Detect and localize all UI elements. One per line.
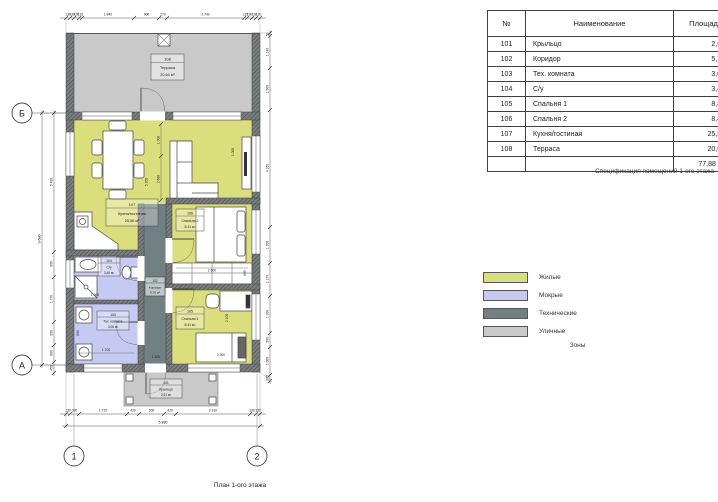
zones-legend: Жилые Мокрые Технические Уличные [483, 271, 577, 343]
header-area: Площадь [674, 11, 718, 37]
svg-text:104: 104 [106, 259, 112, 263]
table-row: 102 Коридор 5,79 [488, 52, 718, 67]
legend-label: Жилые [539, 274, 561, 281]
svg-text:190: 190 [249, 409, 255, 413]
svg-text:С/у: С/у [106, 266, 111, 270]
legend-swatch-outdoor [483, 326, 528, 337]
svg-text:330: 330 [72, 409, 78, 413]
table-row: 101 Крыльцо 2,61 [488, 37, 718, 52]
svg-text:2 600: 2 600 [157, 175, 161, 183]
table-row: 106 Спальня 2 8,41 [488, 112, 718, 127]
legend-item-wet: Мокрые [483, 289, 577, 301]
svg-text:101: 101 [163, 381, 169, 385]
table-caption: Спецификация помещений 1-ого этажа [487, 168, 714, 175]
label-corridor: 102 Коридор 5,79 м² [145, 277, 165, 296]
svg-text:1 000: 1 000 [157, 136, 161, 144]
svg-text:Крыльцо: Крыльцо [159, 388, 173, 392]
svg-text:130: 130 [256, 13, 262, 17]
svg-text:9 680: 9 680 [38, 235, 42, 244]
svg-text:1 000: 1 000 [91, 293, 99, 297]
svg-text:1 170: 1 170 [266, 275, 270, 283]
svg-text:500: 500 [266, 337, 270, 343]
label-bedroom2: 106 Спальня 2 8,41 м² [176, 209, 204, 231]
specification-table: № Наименование Площадь 101 Крыльцо 2,61 … [487, 10, 714, 172]
svg-text:2 740: 2 740 [201, 13, 209, 17]
svg-text:1 400: 1 400 [152, 355, 160, 359]
legend-item-technical: Технические [483, 307, 577, 319]
plan-caption: План 1-ого этажа [214, 482, 267, 489]
axis-label-b: Б [19, 109, 25, 119]
svg-text:3,40 м²: 3,40 м² [104, 271, 114, 275]
header-name: Наименование [526, 11, 674, 37]
table-row: 103 Тех. комната 3,06 [488, 67, 718, 82]
svg-text:1 000: 1 000 [231, 148, 235, 156]
legend-title: Зоны [540, 342, 615, 349]
svg-text:5 300: 5 300 [145, 178, 149, 186]
svg-text:1 140: 1 140 [266, 48, 270, 56]
svg-text:420: 420 [167, 409, 173, 413]
table-row: 108 Терраса 20,64 [488, 142, 718, 157]
svg-text:900: 900 [149, 409, 155, 413]
blueprint-page: 108 Терраса 20,64 м² 107 Кухня/гостиная … [0, 0, 718, 502]
label-terrace: 108 Терраса 20,64 м² [151, 54, 184, 80]
svg-text:8,41 м²: 8,41 м² [184, 225, 196, 229]
svg-text:25,56 м²: 25,56 м² [125, 219, 140, 223]
svg-text:106: 106 [187, 212, 193, 216]
svg-text:270: 270 [160, 13, 166, 17]
table-row: 104 С/у 3,40 [488, 82, 718, 97]
axis-label-1: 1 [71, 452, 76, 462]
svg-text:900: 900 [50, 261, 54, 267]
svg-text:900: 900 [144, 13, 150, 17]
label-bedroom1: 105 Спальня 1 8,41 м² [176, 307, 204, 329]
svg-text:1 840: 1 840 [104, 13, 112, 17]
svg-text:1 700: 1 700 [102, 348, 110, 352]
label-tech: 103 Тех. комната 3,06 м² [97, 311, 129, 330]
table-row: 107 Кухня/гостиная 25,56 [488, 127, 718, 142]
svg-text:6 880: 6 880 [159, 421, 168, 425]
svg-text:1 000: 1 000 [266, 357, 270, 365]
dim-labels-left: 5 490 900 1 770 900 680 450 9 680 [38, 178, 54, 371]
svg-text:680: 680 [50, 350, 54, 356]
axis-label-a: А [19, 361, 25, 371]
axis-label-2: 2 [254, 452, 259, 462]
label-kitchen-living: 107 Кухня/гостиная 25,56 м² [106, 199, 158, 226]
svg-text:Спальня 2: Спальня 2 [182, 219, 199, 223]
svg-text:4 160: 4 160 [266, 164, 270, 172]
legend-swatch-wet [483, 290, 528, 301]
legend-swatch-residential [483, 272, 528, 283]
tv-unit [242, 137, 251, 189]
svg-text:Коридор: Коридор [149, 286, 161, 290]
table-row: 105 Спальня 1 8,41 [488, 97, 718, 112]
svg-text:2 900: 2 900 [208, 269, 216, 273]
svg-text:200: 200 [266, 375, 270, 381]
svg-text:107: 107 [129, 202, 136, 207]
svg-text:130: 130 [255, 409, 261, 413]
svg-text:5 490: 5 490 [50, 178, 54, 186]
legend-item-residential: Жилые [483, 271, 577, 283]
svg-text:2 900: 2 900 [217, 353, 225, 357]
dim-labels-bottom: 130 330 1 710 420 900 420 2 910 190 130 … [65, 409, 261, 425]
svg-text:420: 420 [130, 409, 136, 413]
room-kitchen-living [74, 120, 252, 204]
svg-text:900: 900 [50, 330, 54, 336]
svg-text:2 100: 2 100 [225, 314, 229, 322]
svg-text:3,06 м²: 3,06 м² [108, 325, 118, 329]
label-bathroom: 104 С/у 3,40 м² [98, 257, 120, 276]
dim-labels-top: 130 130 190 115 1 840 900 270 2 740 115 … [65, 13, 261, 17]
legend-item-outdoor: Уличные [483, 325, 577, 337]
svg-text:130: 130 [65, 409, 71, 413]
legend-label: Уличные [539, 328, 565, 335]
floor-plan: 108 Терраса 20,64 м² 107 Кухня/гостиная … [0, 0, 310, 502]
svg-text:103: 103 [110, 313, 116, 317]
svg-text:1 710: 1 710 [99, 409, 107, 413]
svg-text:2 910: 2 910 [209, 409, 217, 413]
svg-text:Тех. комната: Тех. комната [104, 320, 123, 324]
svg-text:Кухня/гостиная: Кухня/гостиная [118, 211, 146, 216]
svg-text:450: 450 [50, 365, 54, 371]
svg-text:600: 600 [243, 270, 247, 276]
label-porch: 101 Крыльцо 2,61 м² [150, 379, 182, 398]
svg-text:Терраса: Терраса [160, 65, 176, 70]
desk [206, 291, 252, 311]
svg-text:8,41 м²: 8,41 м² [184, 323, 196, 327]
svg-text:1 300: 1 300 [266, 310, 270, 318]
dim-labels-right: 50 1 140 1 500 4 160 1 300 1 170 1 300 5… [266, 33, 270, 381]
svg-text:20,64 м²: 20,64 м² [160, 73, 175, 77]
svg-text:5,79 м²: 5,79 м² [150, 291, 160, 295]
table-header-row: № Наименование Площадь [488, 11, 718, 37]
terrace-column [158, 34, 170, 46]
bed-bedroom1 [196, 333, 246, 362]
svg-text:800: 800 [76, 330, 80, 336]
svg-text:108: 108 [164, 57, 171, 62]
legend-label: Мокрые [539, 292, 563, 299]
legend-label: Технические [539, 310, 577, 317]
svg-text:1 770: 1 770 [50, 295, 54, 303]
svg-text:1 300: 1 300 [266, 241, 270, 249]
svg-text:Спальня 1: Спальня 1 [182, 317, 199, 321]
legend-swatch-technical [483, 308, 528, 319]
svg-text:105: 105 [187, 310, 193, 314]
header-num: № [488, 11, 526, 37]
svg-text:2,61 м²: 2,61 м² [161, 393, 171, 397]
svg-text:50: 50 [266, 33, 270, 37]
svg-text:115: 115 [78, 13, 83, 17]
svg-text:102: 102 [152, 279, 158, 283]
svg-text:1 500: 1 500 [266, 85, 270, 93]
